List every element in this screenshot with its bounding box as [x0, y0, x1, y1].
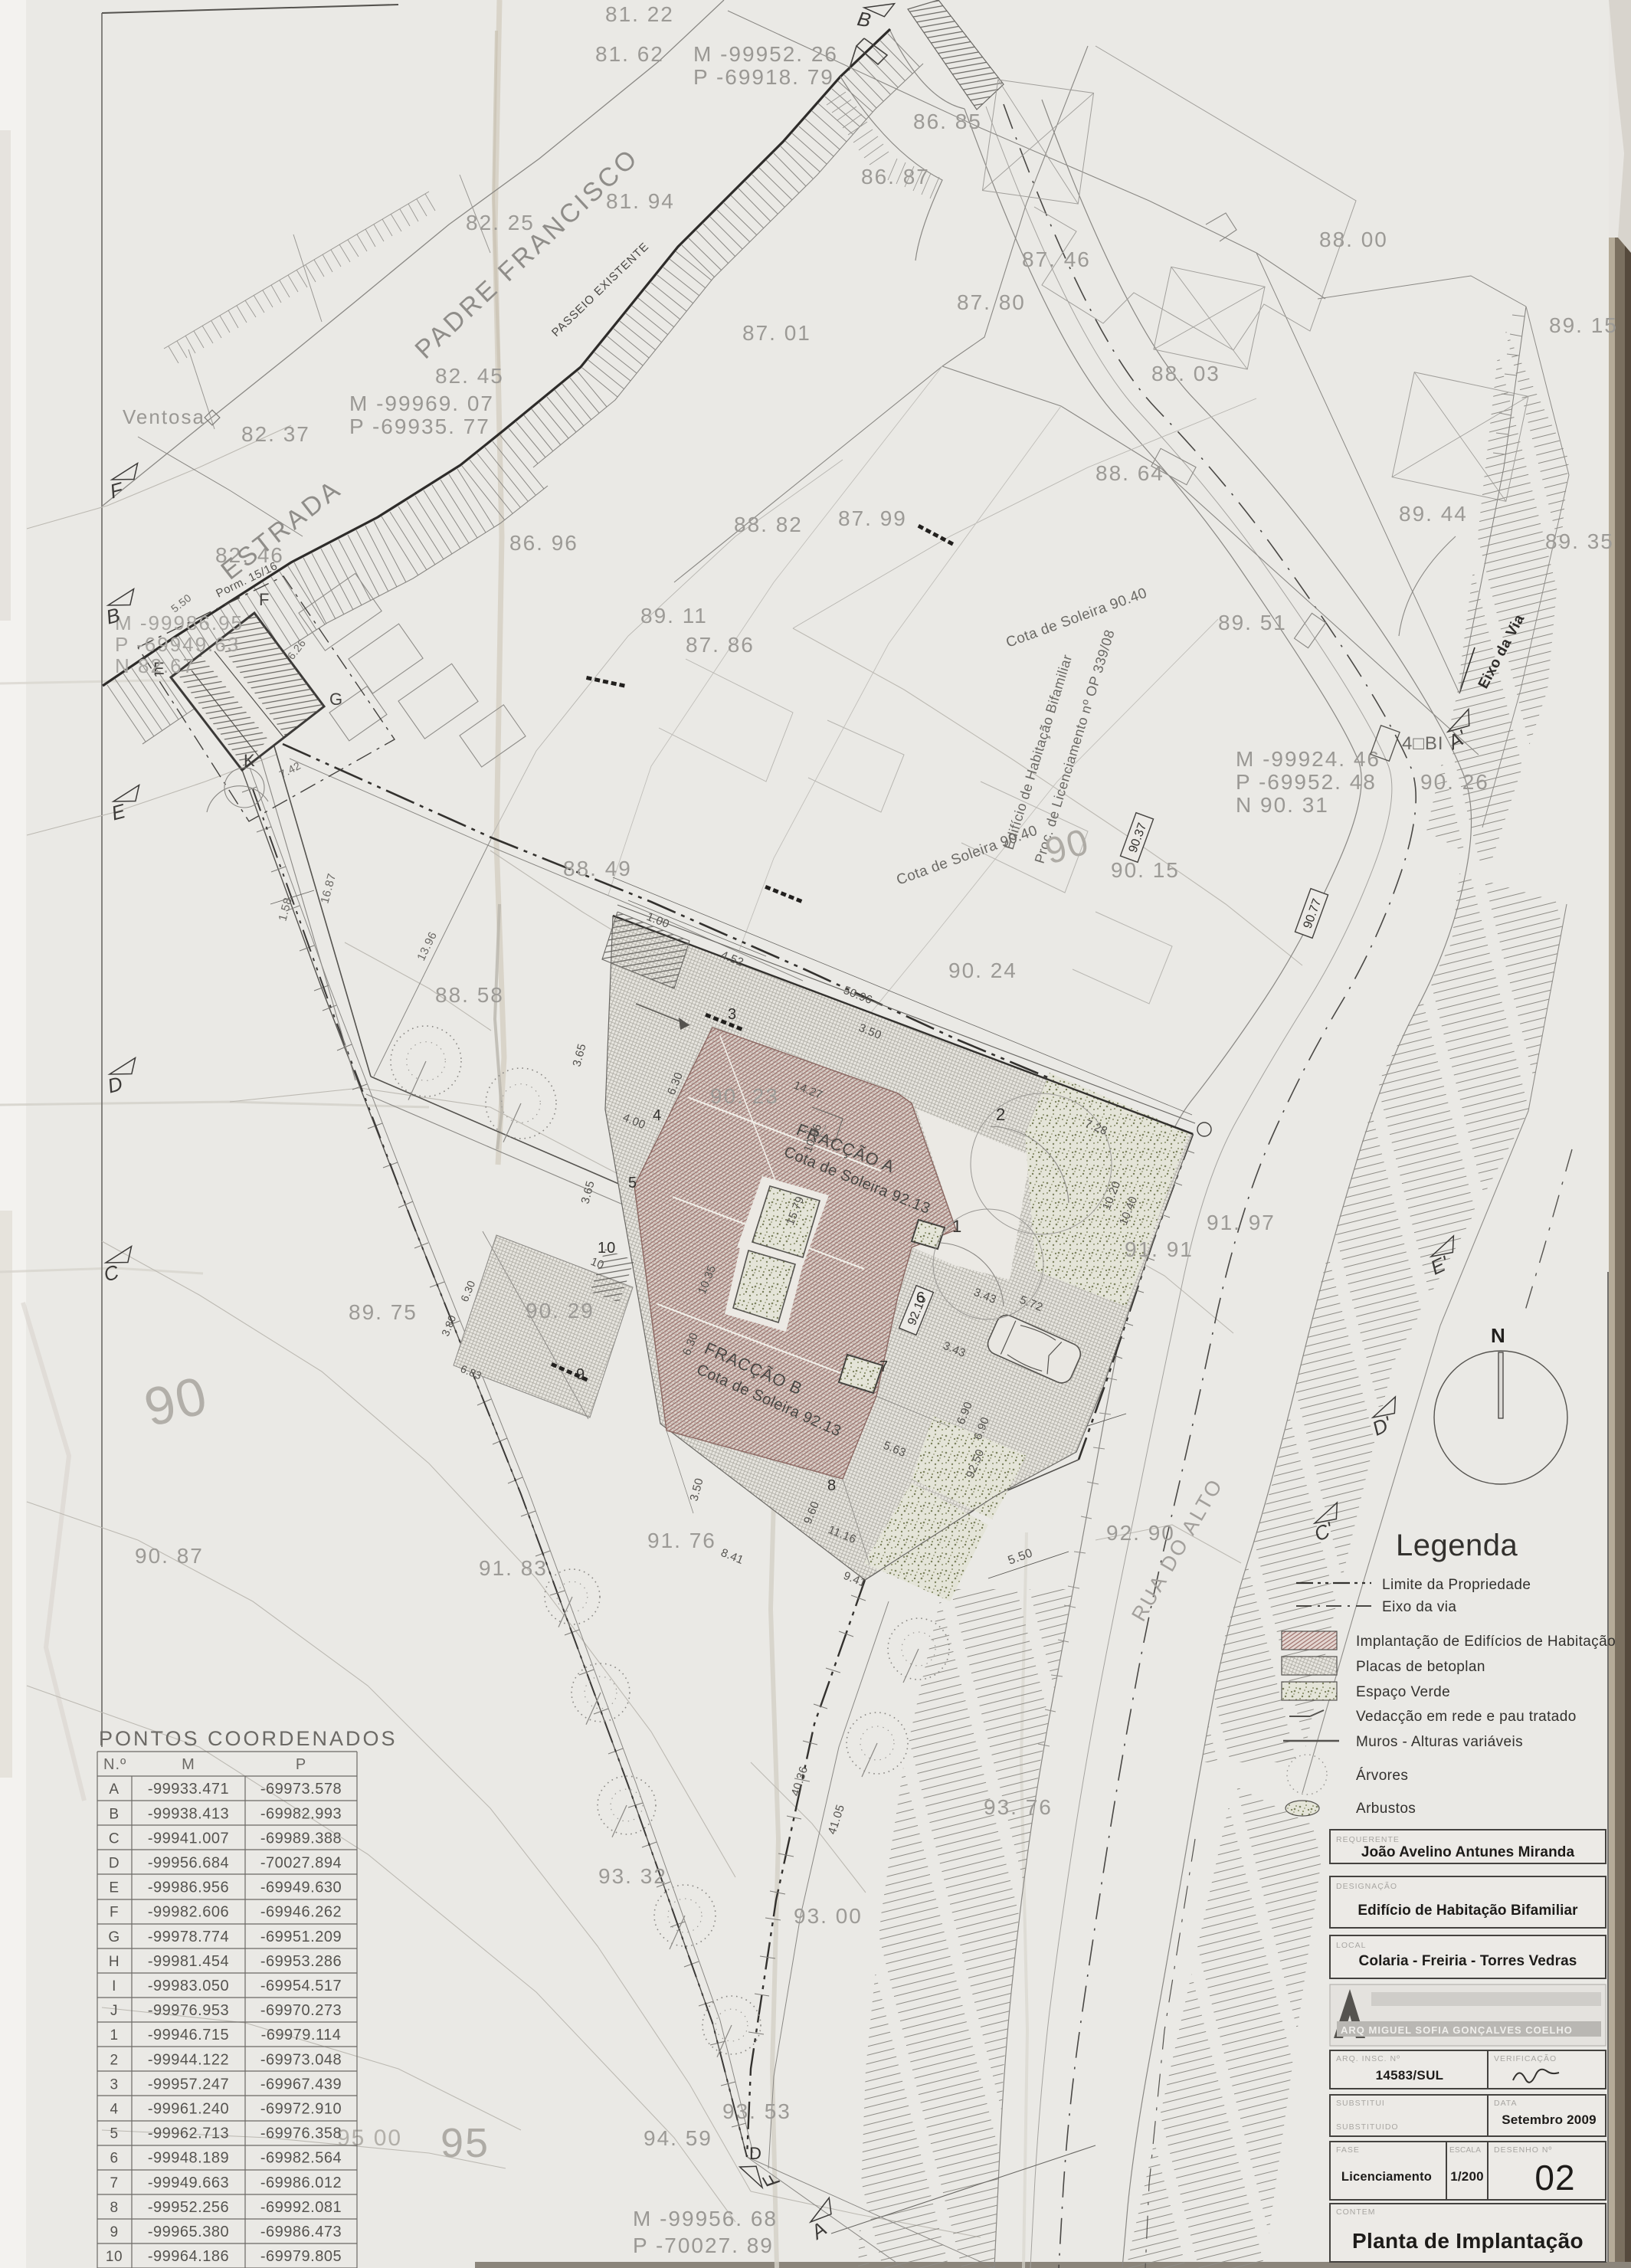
svg-text:82. 25: 82. 25: [466, 211, 535, 234]
svg-text:P -69935. 77: P -69935. 77: [349, 415, 490, 438]
svg-text:4□BI: 4□BI: [1402, 733, 1444, 754]
svg-text:86. 87: 86. 87: [861, 165, 930, 188]
svg-text:ESCALA: ESCALA: [1449, 2146, 1481, 2155]
svg-text:P -69918. 79: P -69918. 79: [693, 65, 834, 89]
svg-text:-69979.114: -69979.114: [261, 2027, 342, 2043]
svg-text:M: M: [182, 1756, 195, 1773]
svg-text:DESENHO Nº: DESENHO Nº: [1494, 2145, 1552, 2155]
svg-text:88. 64: 88. 64: [1096, 461, 1164, 485]
svg-text:D: D: [749, 2144, 762, 2163]
svg-text:E: E: [109, 1880, 119, 1896]
svg-text:FASE: FASE: [1336, 2145, 1360, 2155]
svg-text:81. 62: 81. 62: [595, 42, 664, 66]
svg-text:93. 76: 93. 76: [984, 1795, 1053, 1819]
svg-text:DESIGNAÇÃO: DESIGNAÇÃO: [1336, 1881, 1397, 1891]
svg-text:Muros - Alturas variáveis: Muros - Alturas variáveis: [1356, 1734, 1523, 1750]
svg-text:93. 00: 93. 00: [794, 1904, 863, 1928]
svg-text:7: 7: [879, 1359, 889, 1375]
svg-text:89. 44: 89. 44: [1399, 502, 1468, 526]
svg-text:-99956.684: -99956.684: [148, 1855, 229, 1872]
svg-text:93. 53: 93. 53: [722, 2099, 791, 2123]
svg-text:-69973.578: -69973.578: [260, 1781, 342, 1798]
svg-text:89. 35: 89. 35: [1545, 529, 1614, 553]
svg-text:90. 24: 90. 24: [948, 959, 1017, 982]
svg-text:Limite da Propriedade: Limite da Propriedade: [1382, 1577, 1531, 1593]
svg-text:N 90. 31: N 90. 31: [1236, 793, 1329, 817]
svg-text:M -99969. 07: M -99969. 07: [349, 392, 494, 415]
svg-text:8: 8: [110, 2200, 118, 2216]
svg-text:-69986.012: -69986.012: [260, 2175, 342, 2191]
svg-text:G: G: [329, 690, 343, 709]
svg-text:Edifício de Habitação Bifamili: Edifício de Habitação Bifamiliar: [1358, 1903, 1578, 1919]
svg-text:N 82.67: N 82.67: [115, 654, 195, 677]
svg-text:-69992.081: -69992.081: [260, 2199, 342, 2216]
svg-text:-99983.050: -99983.050: [148, 1978, 229, 1994]
svg-text:95 00: 95 00: [337, 2125, 402, 2151]
svg-text:F: F: [110, 1905, 119, 1921]
svg-text:-69949.630: -69949.630: [260, 1880, 342, 1896]
svg-text:9: 9: [110, 2224, 118, 2240]
svg-text:14583/SUL: 14583/SUL: [1376, 2068, 1444, 2083]
svg-text:8: 8: [827, 1477, 837, 1494]
svg-text:91. 97: 91. 97: [1207, 1211, 1276, 1234]
svg-text:89. 51: 89. 51: [1218, 611, 1287, 634]
svg-text:P -70027. 89: P -70027. 89: [633, 2234, 774, 2257]
svg-text:-99946.715: -99946.715: [148, 2027, 229, 2043]
svg-text:90. 15: 90. 15: [1111, 858, 1180, 882]
svg-text:-99952.256: -99952.256: [148, 2199, 229, 2216]
svg-text:N: N: [1491, 1324, 1506, 1347]
svg-text:87. 80: 87. 80: [957, 290, 1026, 314]
svg-text:90. 87: 90. 87: [135, 1544, 204, 1568]
svg-text:88. 58: 88. 58: [435, 983, 504, 1007]
svg-text:G: G: [108, 1929, 120, 1945]
svg-text:-99948.189: -99948.189: [148, 2150, 229, 2167]
svg-text:1/200: 1/200: [1450, 2169, 1484, 2184]
svg-text:-69986.473: -69986.473: [260, 2224, 342, 2240]
svg-text:ARQ MIGUEL SOFIA GONÇALVES COE: ARQ MIGUEL SOFIA GONÇALVES COELHO: [1341, 2024, 1573, 2036]
svg-text:91. 91: 91. 91: [1125, 1237, 1194, 1261]
svg-text:2: 2: [996, 1105, 1006, 1124]
svg-text:-69954.517: -69954.517: [260, 1978, 342, 1994]
svg-text:VERIFICAÇÃO: VERIFICAÇÃO: [1494, 2053, 1557, 2063]
svg-text:4: 4: [110, 2102, 118, 2118]
svg-text:-69982.993: -69982.993: [260, 1805, 342, 1822]
svg-text:89. 11: 89. 11: [640, 604, 708, 628]
svg-text:02: 02: [1534, 2158, 1575, 2198]
svg-text:Espaço Verde: Espaço Verde: [1356, 1684, 1450, 1700]
svg-text:N.º: N.º: [103, 1756, 126, 1773]
svg-text:81. 22: 81. 22: [605, 2, 674, 26]
svg-text:1: 1: [952, 1217, 962, 1236]
svg-text:-69979.805: -69979.805: [260, 2248, 342, 2265]
svg-text:5: 5: [110, 2126, 118, 2142]
svg-text:7: 7: [110, 2175, 118, 2191]
svg-text:-69967.439: -69967.439: [260, 2076, 342, 2093]
svg-text:-99982.606: -99982.606: [148, 1904, 229, 1921]
svg-text:3: 3: [728, 1006, 737, 1023]
svg-text:A: A: [109, 1781, 119, 1798]
svg-text:I: I: [112, 1978, 116, 1994]
svg-text:88. 00: 88. 00: [1319, 228, 1388, 251]
svg-text:-70027.894: -70027.894: [260, 1855, 342, 1872]
svg-text:-69970.273: -69970.273: [260, 2002, 342, 2019]
svg-text:F: F: [259, 590, 270, 609]
svg-text:92. 90: 92. 90: [1106, 1521, 1175, 1545]
svg-text:Ventosa: Ventosa: [123, 405, 205, 428]
svg-text:-99941.007: -99941.007: [148, 1830, 229, 1847]
svg-text:-69972.910: -69972.910: [260, 2101, 342, 2118]
svg-text:Eixo da via: Eixo da via: [1382, 1599, 1456, 1615]
svg-text:3: 3: [110, 2076, 118, 2093]
svg-text:SUBSTITUIDO: SUBSTITUIDO: [1336, 2122, 1399, 2132]
svg-text:-99949.663: -99949.663: [148, 2175, 229, 2191]
svg-text:P -69952. 48: P -69952. 48: [1236, 770, 1377, 794]
svg-text:-99981.454: -99981.454: [148, 1953, 229, 1970]
svg-text:PONTOS COORDENADOS: PONTOS COORDENADOS: [99, 1727, 398, 1750]
svg-text:5: 5: [628, 1175, 637, 1191]
svg-text:82. 45: 82. 45: [435, 364, 504, 388]
svg-text:-69989.388: -69989.388: [260, 1830, 342, 1847]
svg-text:M -99956. 68: M -99956. 68: [633, 2207, 778, 2230]
svg-text:Setembro 2009: Setembro 2009: [1502, 2112, 1597, 2127]
svg-text:M -99986.95: M -99986.95: [115, 611, 244, 634]
svg-text:P -69949.63: P -69949.63: [115, 633, 240, 656]
svg-text:Planta de Implantação: Planta de Implantação: [1352, 2229, 1584, 2253]
svg-text:-69976.358: -69976.358: [260, 2125, 342, 2142]
svg-text:SUBSTITUI: SUBSTITUI: [1336, 2099, 1385, 2108]
svg-text:-99938.413: -99938.413: [148, 1805, 229, 1822]
svg-text:K: K: [244, 751, 256, 770]
svg-text:88. 82: 88. 82: [734, 513, 803, 536]
svg-text:87. 86: 87. 86: [686, 633, 755, 657]
svg-text:M -99924. 46: M -99924. 46: [1236, 747, 1380, 771]
svg-text:1: 1: [110, 2027, 118, 2043]
svg-text:87. 46: 87. 46: [1022, 247, 1091, 271]
svg-text:-69982.564: -69982.564: [260, 2150, 342, 2167]
svg-text:-69946.262: -69946.262: [260, 1904, 342, 1921]
svg-text:82. 37: 82. 37: [241, 422, 310, 446]
svg-text:-99962.713: -99962.713: [148, 2125, 229, 2142]
svg-text:10: 10: [106, 2249, 123, 2265]
svg-text:89. 15: 89. 15: [1549, 313, 1618, 337]
svg-text:91. 76: 91. 76: [647, 1529, 716, 1552]
svg-text:Licenciamento: Licenciamento: [1341, 2170, 1432, 2184]
svg-text:-99965.380: -99965.380: [148, 2224, 229, 2240]
svg-text:B: B: [109, 1806, 119, 1822]
svg-text:Árvores: Árvores: [1356, 1768, 1408, 1784]
svg-text:-99933.471: -99933.471: [148, 1781, 229, 1798]
svg-text:87. 01: 87. 01: [742, 321, 811, 345]
svg-text:87. 99: 87. 99: [838, 506, 907, 530]
svg-text:90. 29: 90. 29: [526, 1299, 594, 1322]
svg-text:93. 32: 93. 32: [598, 1864, 667, 1888]
svg-text:M -99952. 26: M -99952. 26: [693, 42, 838, 66]
svg-text:91. 83: 91. 83: [479, 1556, 548, 1580]
svg-text:DATA: DATA: [1494, 2099, 1517, 2108]
svg-text:6: 6: [916, 1290, 925, 1306]
svg-text:90. 26: 90. 26: [1420, 770, 1489, 794]
svg-text:LOCAL: LOCAL: [1336, 1941, 1366, 1950]
svg-text:CONTEM: CONTEM: [1336, 2207, 1376, 2217]
svg-text:10: 10: [598, 1240, 616, 1257]
svg-text:-99964.186: -99964.186: [148, 2248, 229, 2265]
svg-text:90. 23: 90. 23: [710, 1084, 779, 1108]
svg-text:REQUERENTE: REQUERENTE: [1336, 1835, 1400, 1844]
svg-text:Colaria - Freiria - Torres Ved: Colaria - Freiria - Torres Vedras: [1359, 1953, 1577, 1969]
svg-text:ARQ. INSC. Nº: ARQ. INSC. Nº: [1336, 2054, 1400, 2063]
svg-text:J: J: [110, 2003, 118, 2019]
svg-text:-99944.122: -99944.122: [148, 2051, 229, 2068]
svg-text:-99957.247: -99957.247: [148, 2076, 229, 2093]
svg-text:9: 9: [576, 1366, 585, 1383]
svg-text:89. 75: 89. 75: [349, 1300, 418, 1324]
svg-text:Vedacção em rede e pau tratado: Vedacção em rede e pau tratado: [1356, 1709, 1577, 1725]
svg-text:Legenda: Legenda: [1396, 1529, 1518, 1562]
svg-text:João Avelino Antunes Miranda: João Avelino Antunes Miranda: [1361, 1844, 1575, 1860]
svg-text:-69973.048: -69973.048: [260, 2051, 342, 2068]
svg-text:88. 49: 88. 49: [563, 857, 632, 880]
svg-text:-69951.209: -69951.209: [260, 1929, 342, 1945]
svg-text:C: C: [109, 1830, 120, 1847]
svg-text:95: 95: [441, 2120, 490, 2166]
svg-text:81. 94: 81. 94: [606, 189, 675, 213]
svg-text:86. 96: 86. 96: [509, 531, 578, 555]
svg-text:-99978.774: -99978.774: [148, 1929, 229, 1945]
svg-text:-99976.953: -99976.953: [148, 2002, 229, 2019]
svg-text:-99986.956: -99986.956: [148, 1880, 229, 1896]
svg-text:Placas de betoplan: Placas de betoplan: [1356, 1659, 1485, 1675]
svg-text:Implantação de Edifícios de Ha: Implantação de Edifícios de Habitação: [1356, 1634, 1616, 1650]
svg-text:6: 6: [110, 2151, 118, 2167]
svg-text:-69953.286: -69953.286: [260, 1953, 342, 1970]
svg-text:D: D: [109, 1856, 120, 1872]
svg-text:Arbustos: Arbustos: [1356, 1801, 1416, 1817]
svg-text:-99961.240: -99961.240: [148, 2101, 229, 2118]
svg-text:4: 4: [653, 1107, 662, 1124]
svg-text:94. 59: 94. 59: [644, 2126, 712, 2150]
svg-text:P: P: [296, 1756, 306, 1773]
svg-text:2: 2: [110, 2052, 118, 2068]
svg-text:86. 85: 86. 85: [913, 110, 982, 133]
svg-text:88. 03: 88. 03: [1151, 362, 1220, 385]
svg-text:H: H: [109, 1954, 120, 1970]
